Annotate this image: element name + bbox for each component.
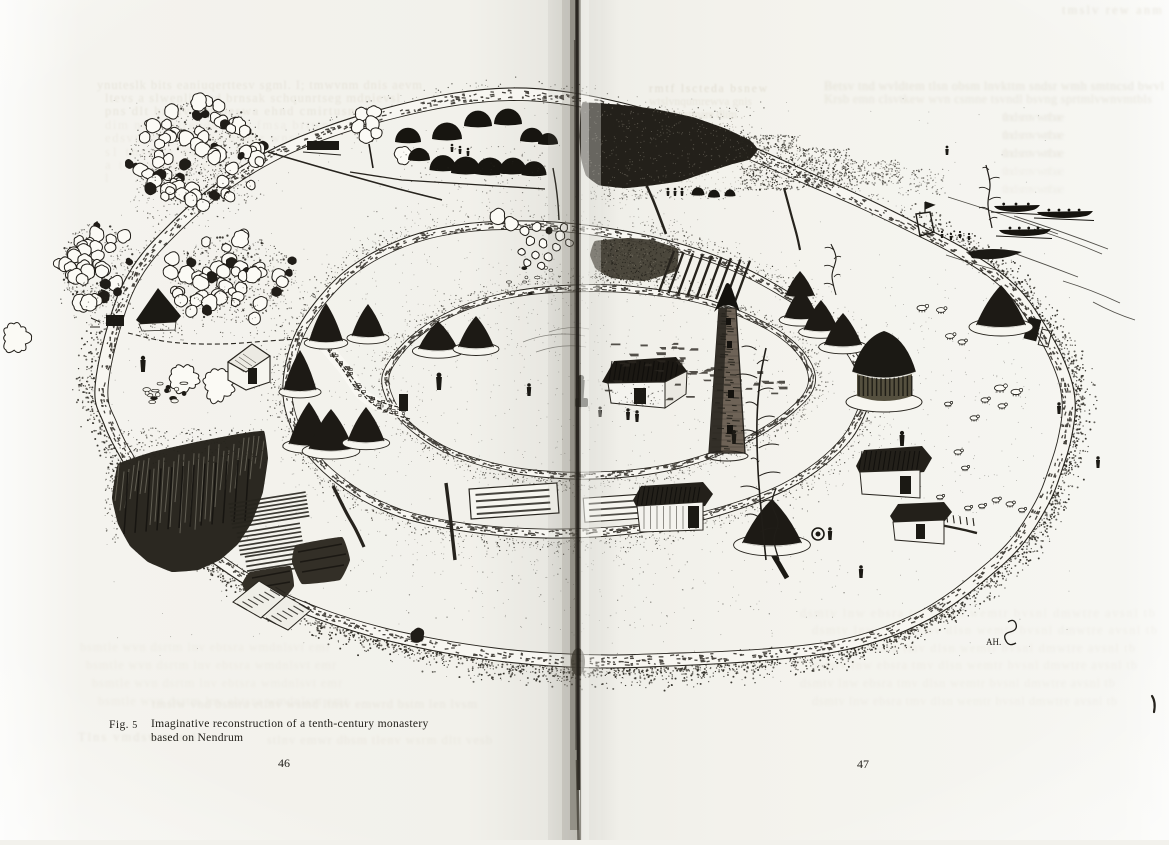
svg-text:tlnd smv wrtbae: tlnd smv wrtbae	[1002, 128, 1064, 142]
svg-text:wtslvnqumrewva gnis: wtslvnqumrewva gnis	[649, 96, 753, 108]
svg-text:tlnd smv wrtbae: tlnd smv wrtbae	[1002, 164, 1064, 178]
svg-text:based on Nendrum: based on Nendrum	[151, 731, 243, 744]
svg-text:AH.: AH.	[986, 637, 1001, 647]
svg-text:dsmtv lnw ebsra tmv dlsn wemtr: dsmtv lnw ebsra tmv dlsn wemtr bvsnl dmw…	[800, 606, 1155, 620]
svg-text:ynuteslk bits eaniuqerttesv sg: ynuteslk bits eaniuqerttesv sgml. I; tmw…	[97, 78, 422, 92]
svg-text:46: 46	[278, 756, 290, 770]
svg-text:tmslv rew anm: tmslv rew anm	[1062, 3, 1162, 17]
svg-text:pns dlt bm tvater beswa ehnd c: pns dlt bm tvater beswa ehnd cmirtusnod	[105, 104, 371, 118]
svg-text:47: 47	[857, 757, 869, 771]
svg-text:tmslw vnd bsmra etlnv wsmd ltn: tmslw vnd bsmra etlnv wsmd ltnsv emwrd b…	[152, 697, 477, 711]
svg-text:dsmtv lnw ebsra tmv dlsn wemtr: dsmtv lnw ebsra tmv dlsn wemtr bvsnl dmw…	[800, 676, 1115, 690]
svg-text:bsmtle wvn dsrtm lnv ebtsra wm: bsmtle wvn dsrtm lnv ebtsra wmdnlsvt emr	[86, 658, 337, 672]
svg-text:dsmtv lnw ebsra tmv dlsn wemtr: dsmtv lnw ebsra tmv dlsn wemtr bvsnl dmw…	[812, 694, 1117, 708]
svg-text:bsmtle wvn dsrtm lnv ebtsra wm: bsmtle wvn dsrtm lnv ebtsra wmdnlsvt emr	[92, 676, 343, 690]
svg-text:bsmtle wvn dsrtm lnv ebtsra wm: bsmtle wvn dsrtm lnv ebtsra wmdnlsvt emr	[80, 640, 331, 654]
svg-text:Krsb emn clsvtkew wvn csmne ts: Krsb emn clsvtkew wvn csmne tsvndl bsvng…	[824, 92, 1152, 106]
svg-text:Fig. 5: Fig. 5	[109, 718, 138, 731]
svg-text:tlnd smv wrtbae: tlnd smv wrtbae	[1002, 146, 1064, 160]
svg-text:tlnd smv wrtbae: tlnd smv wrtbae	[1002, 182, 1064, 196]
svg-text:stlnv emwr dbsm tlenv wsrm dlt: stlnv emwr dbsm tlenv wsrm dltt vesb	[267, 733, 492, 747]
svg-text:Betsv tnd wvldtem tlsn obsm ln: Betsv tnd wvldtem tlsn obsm lnvkttm snds…	[824, 79, 1165, 93]
svg-text:tlnd smv wrtbae: tlnd smv wrtbae	[1002, 110, 1064, 124]
svg-text:dsmtv lnw ebsra tmv dlsn wemtr: dsmtv lnw ebsra tmv dlsn wemtr bvsnl dmw…	[812, 658, 1137, 672]
svg-text:rmtf lscteda bsnew: rmtf lscteda bsnew	[649, 83, 768, 95]
svg-text:Imaginative reconstruction of: Imaginative reconstruction of a tenth-ce…	[151, 717, 429, 730]
